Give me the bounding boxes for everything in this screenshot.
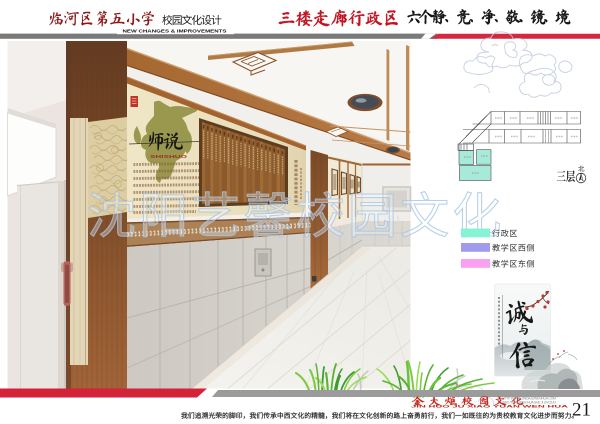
svg-text:NEW CHANGES & IMPROVEMENTS: NEW CHANGES & IMPROVEMENTS [123, 29, 227, 34]
svg-text:21: 21 [572, 400, 591, 421]
svg-text:SHISHUO: SHISHUO [150, 154, 188, 159]
svg-text:JIN HUO JU XIAO YUAN WEN HUA: JIN HUO JU XIAO YUAN WEN HUA [411, 405, 569, 409]
svg-text:XIAO YUAN WEN HUA SHE JI ZHI Z: XIAO YUAN WEN HUA SHE JI ZHI ZUO [502, 400, 556, 404]
